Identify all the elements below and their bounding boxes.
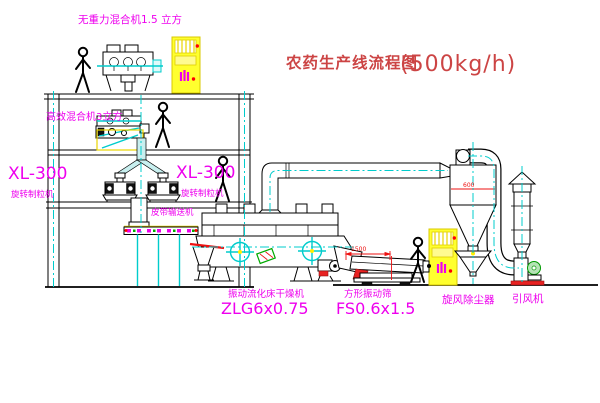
page-title: 农药生产线流程图 [285,53,418,72]
discharge-pipe [129,198,149,227]
label-high-efficiency-mixer: 高效混合机3立方 [46,110,122,123]
label-granulator-right-model: XL-300 [176,163,235,183]
label-granulator-right-name: 旋转制粒机 [181,188,224,199]
fluid-bed-dryer [190,204,358,281]
worker-figure-1 [76,48,90,92]
dim-sieve-length: 1500 [351,246,366,253]
label-gravity-free-mixer: 无重力混合机1.5 立方 [78,13,182,26]
label-granulator-left-model: XL-300 [8,164,67,184]
page-title-capacity: (500kg/h) [400,52,516,77]
label-granulator-left-name: 旋转制粒机 [11,189,54,200]
belt-conveyor [124,227,198,287]
control-cabinet-right [429,229,457,285]
label-cyclone: 旋风除尘器 [442,293,495,306]
flow-diagram-canvas: 无重力混合机1.5 立方 农药生产线流程图 (500kg/h) 高效混合机3立方… [0,0,600,403]
gravity-free-mixer [97,45,163,91]
label-dryer-model: ZLG6x0.75 [221,299,309,318]
worker-figure-2 [156,103,170,147]
flow-diagram-page: 无重力混合机1.5 立方 农药生产线流程图 (500kg/h) 高效混合机3立方… [0,0,600,403]
induced-draft-fan [511,258,544,285]
control-cabinet-top [172,37,200,93]
granulator-right [146,173,180,202]
dim-duct-size: 600 [463,182,475,189]
label-belt-conveyor: 皮带输送机 [151,207,194,218]
label-sieve-model: FS0.6x1.5 [336,299,415,318]
label-fan: 引风机 [512,292,544,305]
